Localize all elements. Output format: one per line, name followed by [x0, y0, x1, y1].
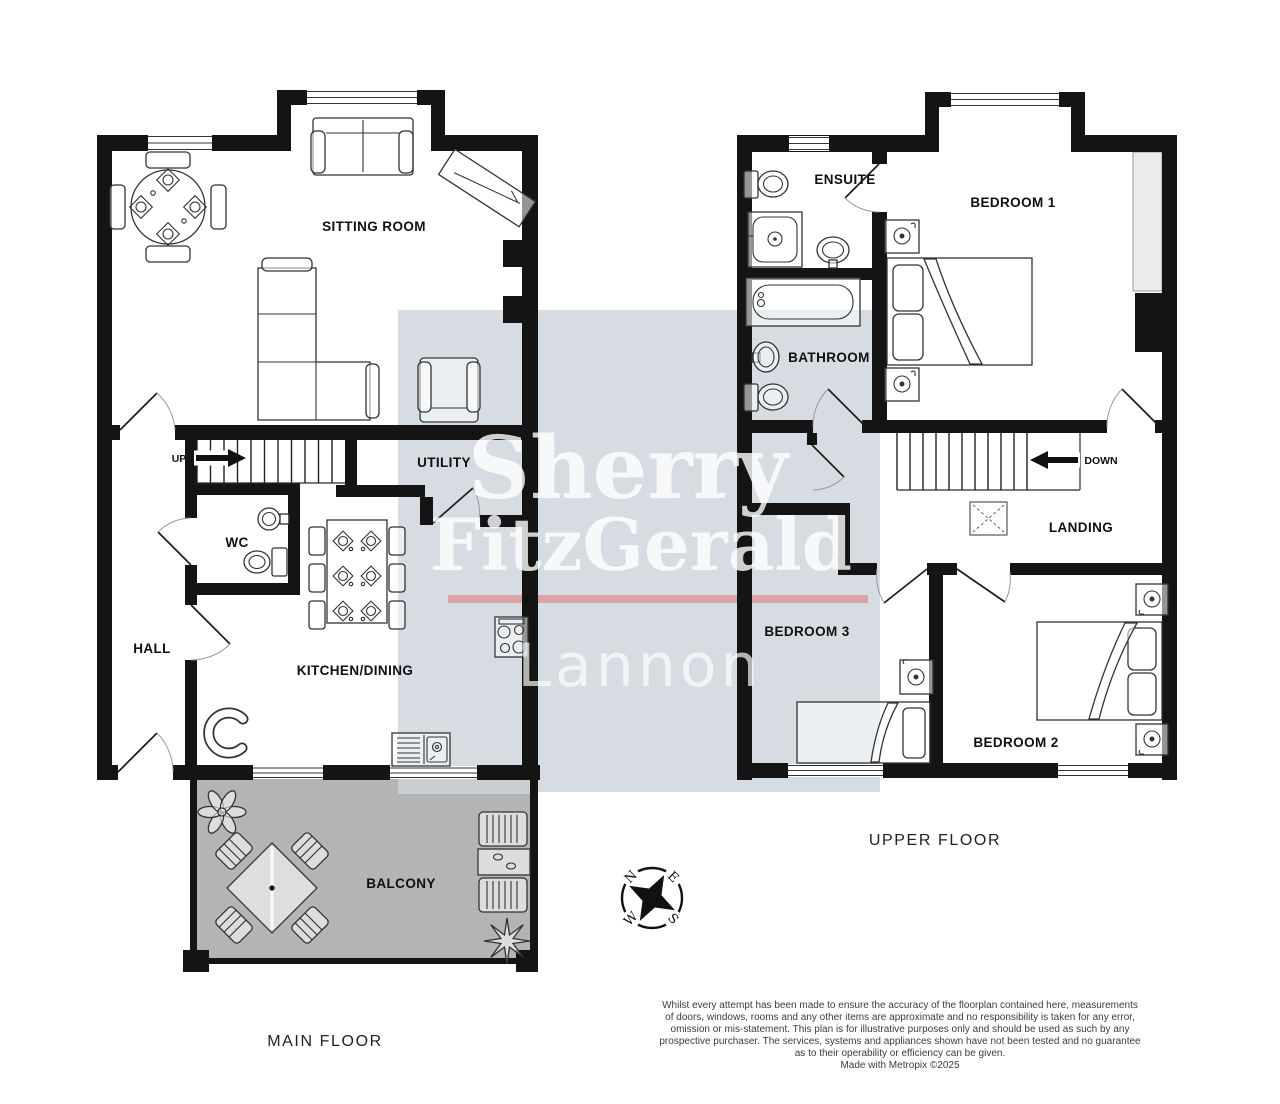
room-label-bedroom2: BEDROOM 2 [973, 735, 1058, 750]
bathtub [746, 278, 860, 326]
window-kitchen [390, 766, 477, 779]
balcony-lounge-chairs [478, 812, 530, 912]
balcony-watermark-tint [398, 778, 538, 794]
room-label-wc: WC [225, 535, 248, 550]
disclaimer-line: Whilst every attempt has been made to en… [662, 1000, 1138, 1011]
disclaimer-line: of doors, windows, rooms and any other i… [665, 1012, 1135, 1023]
footer-disclaimer: Whilst every attempt has been made to en… [659, 1000, 1141, 1071]
wc-toilet [244, 548, 287, 576]
bed-double-bedroom1 [887, 258, 1032, 365]
room-label-bedroom1: BEDROOM 1 [970, 195, 1055, 210]
wardrobe-bedroom1 [1133, 152, 1162, 291]
sideboard-diagonal [439, 149, 536, 226]
watermark-brand-line2: FitzGerald [430, 502, 852, 587]
room-label-utility: UTILITY [417, 455, 471, 470]
bed-single-bedroom3 [797, 702, 930, 763]
stairs-upper: DOWN [897, 433, 1118, 490]
nightstand [1136, 724, 1168, 755]
kitchen-sink [392, 733, 450, 766]
ensuite-sink [817, 237, 849, 268]
window-kitchen-patio-door [253, 766, 323, 779]
window-sitting-left [148, 135, 212, 151]
bathroom-sink [752, 342, 779, 372]
disclaimer-line: prospective purchaser. The services, sys… [659, 1036, 1141, 1047]
compass-rose: N E S W [617, 863, 687, 933]
window-bedroom3 [788, 764, 883, 777]
ensuite-toilet [744, 171, 788, 198]
floorplan-canvas: UP [0, 0, 1280, 1104]
window-ensuite [789, 136, 829, 151]
disclaimer-line: omission or mis-statement. This plan is … [671, 1024, 1130, 1035]
stairs-up-label: UP [172, 453, 187, 465]
kitchen-dining-table [309, 520, 405, 629]
window-bedroom2 [1058, 764, 1128, 777]
stairs-down-label: DOWN [1084, 455, 1117, 467]
patio-table-set [214, 831, 330, 945]
room-label-hall: HALL [133, 641, 171, 656]
nightstand [885, 368, 919, 401]
door-sitting-room [120, 393, 175, 430]
room-label-sitting-room: SITTING ROOM [322, 219, 426, 234]
armchair-sitting [418, 358, 480, 422]
stairs-main: UP [172, 440, 345, 483]
bathroom-toilet [744, 384, 788, 411]
ensuite-shower [748, 212, 802, 267]
watermark-office-name: Lannon [518, 631, 763, 701]
door-bedroom1 [1107, 389, 1160, 427]
door-bedroom2 [957, 569, 1010, 602]
plant-starburst [484, 918, 530, 964]
door-hall-kitchen [191, 605, 230, 660]
round-dining-table [110, 152, 226, 262]
disclaimer-credit: Made with Metropix ©2025 [840, 1060, 960, 1071]
bed-double-bedroom2 [1037, 622, 1162, 720]
watermark-accent-line [448, 595, 868, 603]
nightstand [900, 660, 933, 694]
room-label-ensuite: ENSUITE [814, 172, 875, 187]
nightstand [885, 220, 919, 253]
room-label-balcony: BALCONY [366, 876, 436, 891]
room-label-bathroom: BATHROOM [788, 350, 870, 365]
door-front [118, 733, 173, 772]
door-bedroom3 [877, 569, 927, 603]
wc-sink [258, 508, 289, 530]
disclaimer-line: as to their operability or efficiency ca… [795, 1048, 1006, 1059]
door-wc [158, 518, 191, 565]
upper-floor-title: UPPER FLOOR [869, 832, 1001, 849]
main-floor-title: MAIN FLOOR [267, 1033, 383, 1050]
attic-hatch [970, 502, 1007, 535]
window-bay-sitting [307, 90, 417, 105]
tub-chair [209, 713, 243, 753]
corner-sofa [258, 258, 379, 420]
floorplan-page: UP [0, 0, 1280, 1104]
room-label-bedroom3: BEDROOM 3 [764, 624, 849, 639]
room-label-kitchen-dining: KITCHEN/DINING [297, 663, 414, 678]
nightstand [1136, 584, 1168, 615]
sofa-two-seat [311, 118, 413, 175]
window-bay-bedroom1 [951, 92, 1059, 107]
room-label-landing: LANDING [1049, 520, 1113, 535]
